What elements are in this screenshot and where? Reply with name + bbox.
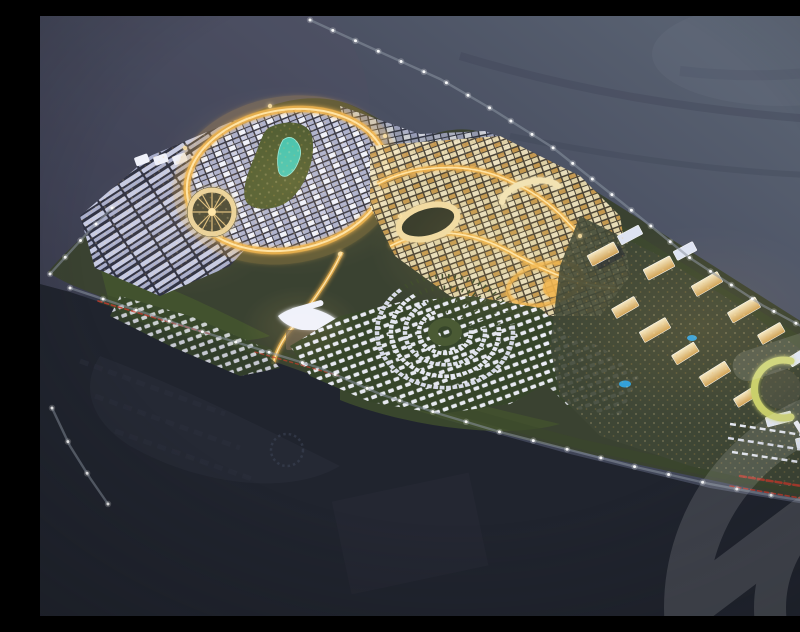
scene-canvas — [40, 16, 800, 616]
aerial-render — [40, 16, 800, 616]
